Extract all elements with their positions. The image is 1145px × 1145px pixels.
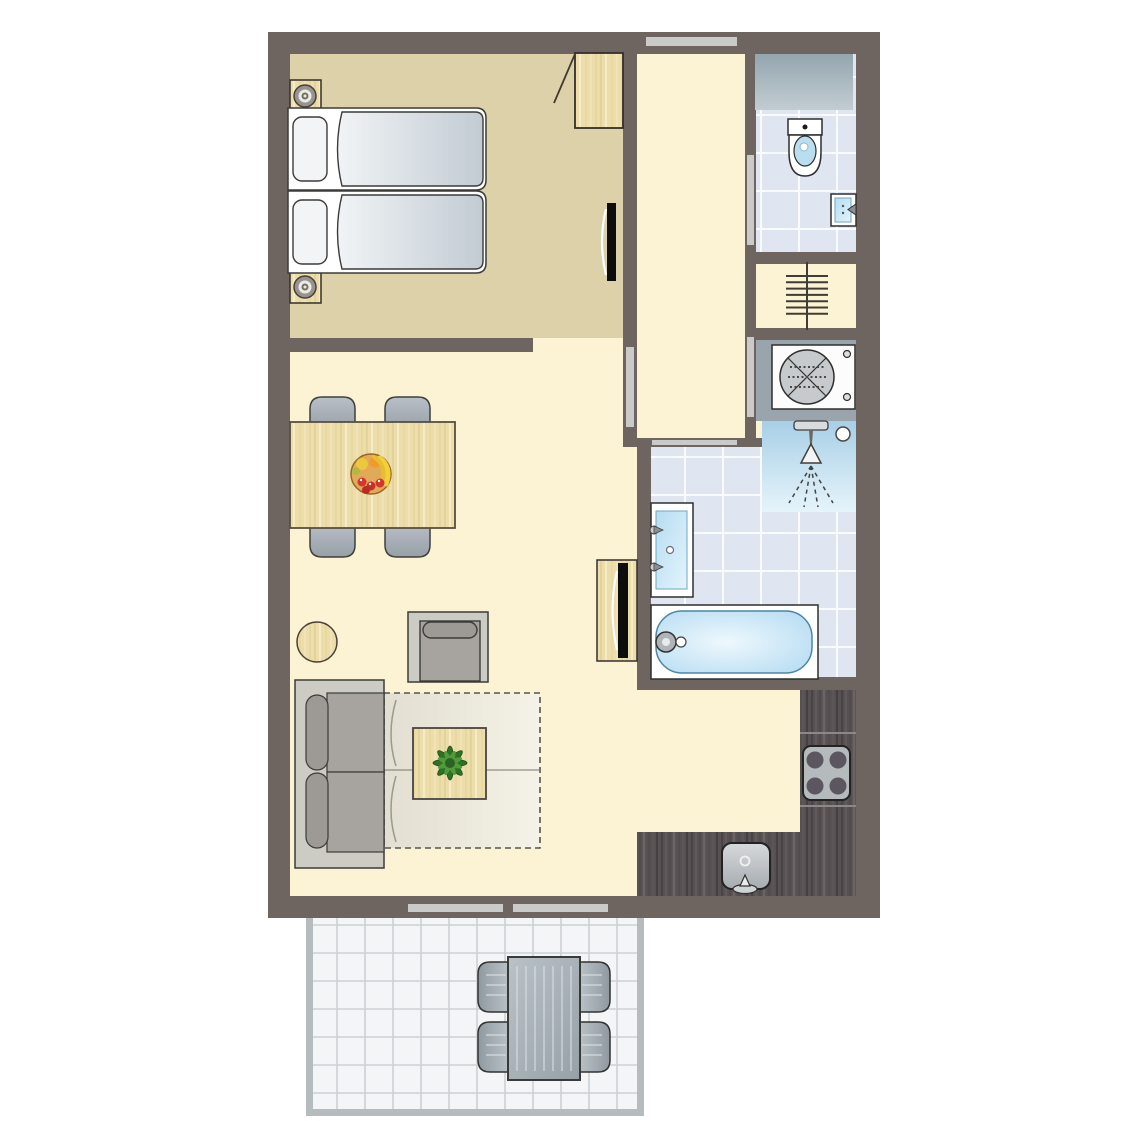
stove-icon (803, 746, 850, 800)
washing-machine-icon (772, 345, 855, 409)
sofa-seat (327, 693, 384, 772)
sliding-door-living-hall (626, 347, 634, 427)
toilet-counter (755, 54, 853, 110)
sofa (295, 680, 384, 868)
terrace-window-left (408, 904, 503, 912)
wall-toilet-south (745, 252, 856, 264)
duvet-bottom (338, 195, 484, 269)
burner (830, 752, 847, 769)
floor-plan-svg (0, 0, 1145, 1145)
toilet-icon (788, 119, 822, 176)
sliding-door-laundry (747, 337, 754, 417)
potted-plant-icon (433, 746, 467, 780)
burner (807, 752, 824, 769)
terrace-tile-floor (313, 918, 637, 1109)
sliding-door-bathroom (652, 440, 737, 445)
lamp-icon (294, 85, 316, 107)
lamp-icon (294, 276, 316, 298)
sofa-back-cushion (306, 695, 328, 770)
floor-plan-canvas (0, 0, 1145, 1145)
patio-chair (576, 962, 610, 1012)
burner (807, 778, 824, 795)
bathtub-drain (676, 637, 686, 647)
round-side-table (297, 622, 337, 662)
twin-beds (288, 108, 486, 273)
washbasin-vanity (650, 503, 693, 597)
terrace-window-right (513, 904, 608, 912)
terrace (306, 918, 644, 1116)
wardrobe (575, 53, 623, 128)
pillow (293, 200, 327, 264)
sofa-back-cushion (306, 773, 328, 848)
kitchen-sink-icon (722, 843, 770, 894)
basin-drain (667, 547, 674, 554)
bathtub (651, 605, 818, 679)
front-door (646, 37, 737, 46)
burner (830, 778, 847, 795)
washer-knob (844, 351, 851, 358)
wall-bathroom-west (637, 447, 651, 690)
pillow (293, 117, 327, 181)
duvet-top (338, 112, 484, 186)
armchair (408, 612, 488, 682)
wall-bedroom-south (290, 338, 533, 352)
sliding-door-toilet (747, 155, 754, 245)
patio-chair (478, 1022, 512, 1072)
patio-chair (576, 1022, 610, 1072)
armchair-back-cushion (423, 622, 477, 638)
patio-chair (478, 962, 512, 1012)
sofa-seat (327, 772, 384, 852)
washer-knob (844, 394, 851, 401)
fruit-bowl (351, 454, 391, 494)
hand-basin-icon (831, 194, 856, 226)
floor-drain-icon (836, 427, 850, 441)
